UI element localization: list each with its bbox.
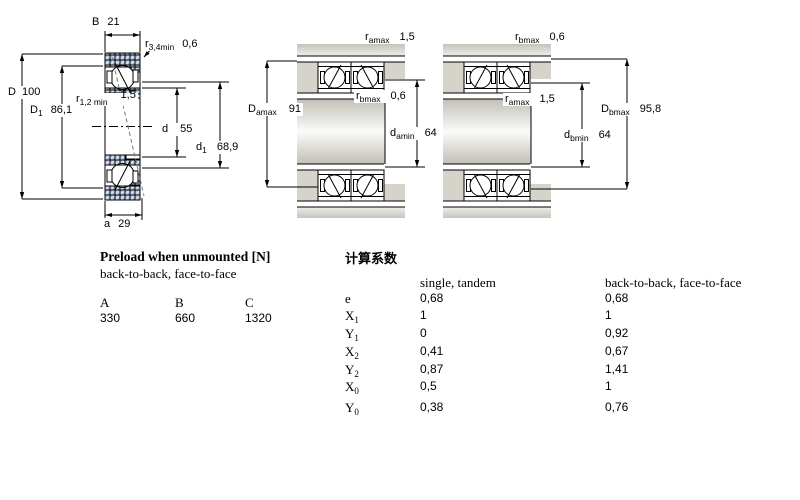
factor-row-y0: Y0 0,38 0,76 [345,400,741,418]
factors-title: 计算系数 [345,248,741,267]
dim-label-D1: D186,1 [28,104,74,117]
dim-label-dbmin: dbmin64 [562,129,613,142]
preload-table: Preload when unmounted [N] back-to-back,… [100,249,335,326]
preload-col-b: B [175,295,245,311]
factor-row-x0: X0 0,5 1 [345,379,741,397]
preload-col-a: A [100,295,175,311]
calculation-factors-table: 计算系数 single, tandem back-to-back, face-t… [345,248,741,418]
dim-label-ramax-right: ramax1,5 [503,93,557,106]
factor-row-x2: X2 0,41 0,67 [345,344,741,362]
dim-label-damin: damin64 [388,127,439,140]
dim-label-B: B21 [90,16,122,29]
preload-col-c: C [245,295,335,311]
factors-header-row: single, tandem back-to-back, face-to-fac… [345,275,741,291]
factor-row-y1: Y1 0 0,92 [345,326,741,344]
dim-label-Damax: Damax91 [246,103,303,116]
left-bearing-drawing [20,31,229,220]
factors-col-single-header: single, tandem [420,275,605,291]
factor-row-x1: X1 1 1 [345,308,741,326]
preload-subtitle: back-to-back, face-to-face [100,266,335,282]
preload-title: Preload when unmounted [N] [100,249,335,265]
dim-label-ramax-mid: ramax1,5 [363,31,417,44]
preload-value-b: 660 [175,311,245,327]
preload-value-a: 330 [100,311,175,327]
dim-label-r12min: r1,2 min1,5 [74,93,138,106]
dim-label-Dbmax: Dbmax95,8 [599,103,663,116]
dim-label-d1: d168,9 [194,141,240,154]
dim-label-a: a29 [102,218,132,231]
dim-label-d: d55 [160,123,194,136]
factors-col-pair-header: back-to-back, face-to-face [605,275,741,291]
dim-label-rbmax-mid: rbmax0,6 [354,90,408,103]
dim-label-D: D100 [6,86,42,99]
dim-label-rbmax-right: rbmax0,6 [513,31,567,44]
factor-row-e: e 0,68 0,68 [345,291,741,309]
bearing-datasheet-page: B21 r3,4min0,6 D100 r1,2 min1,5 D186,1 d… [0,0,800,500]
dim-label-r34min: r3,4min0,6 [143,38,199,51]
factor-row-y2: Y2 0,87 1,41 [345,362,741,380]
preload-value-c: 1320 [245,311,335,327]
